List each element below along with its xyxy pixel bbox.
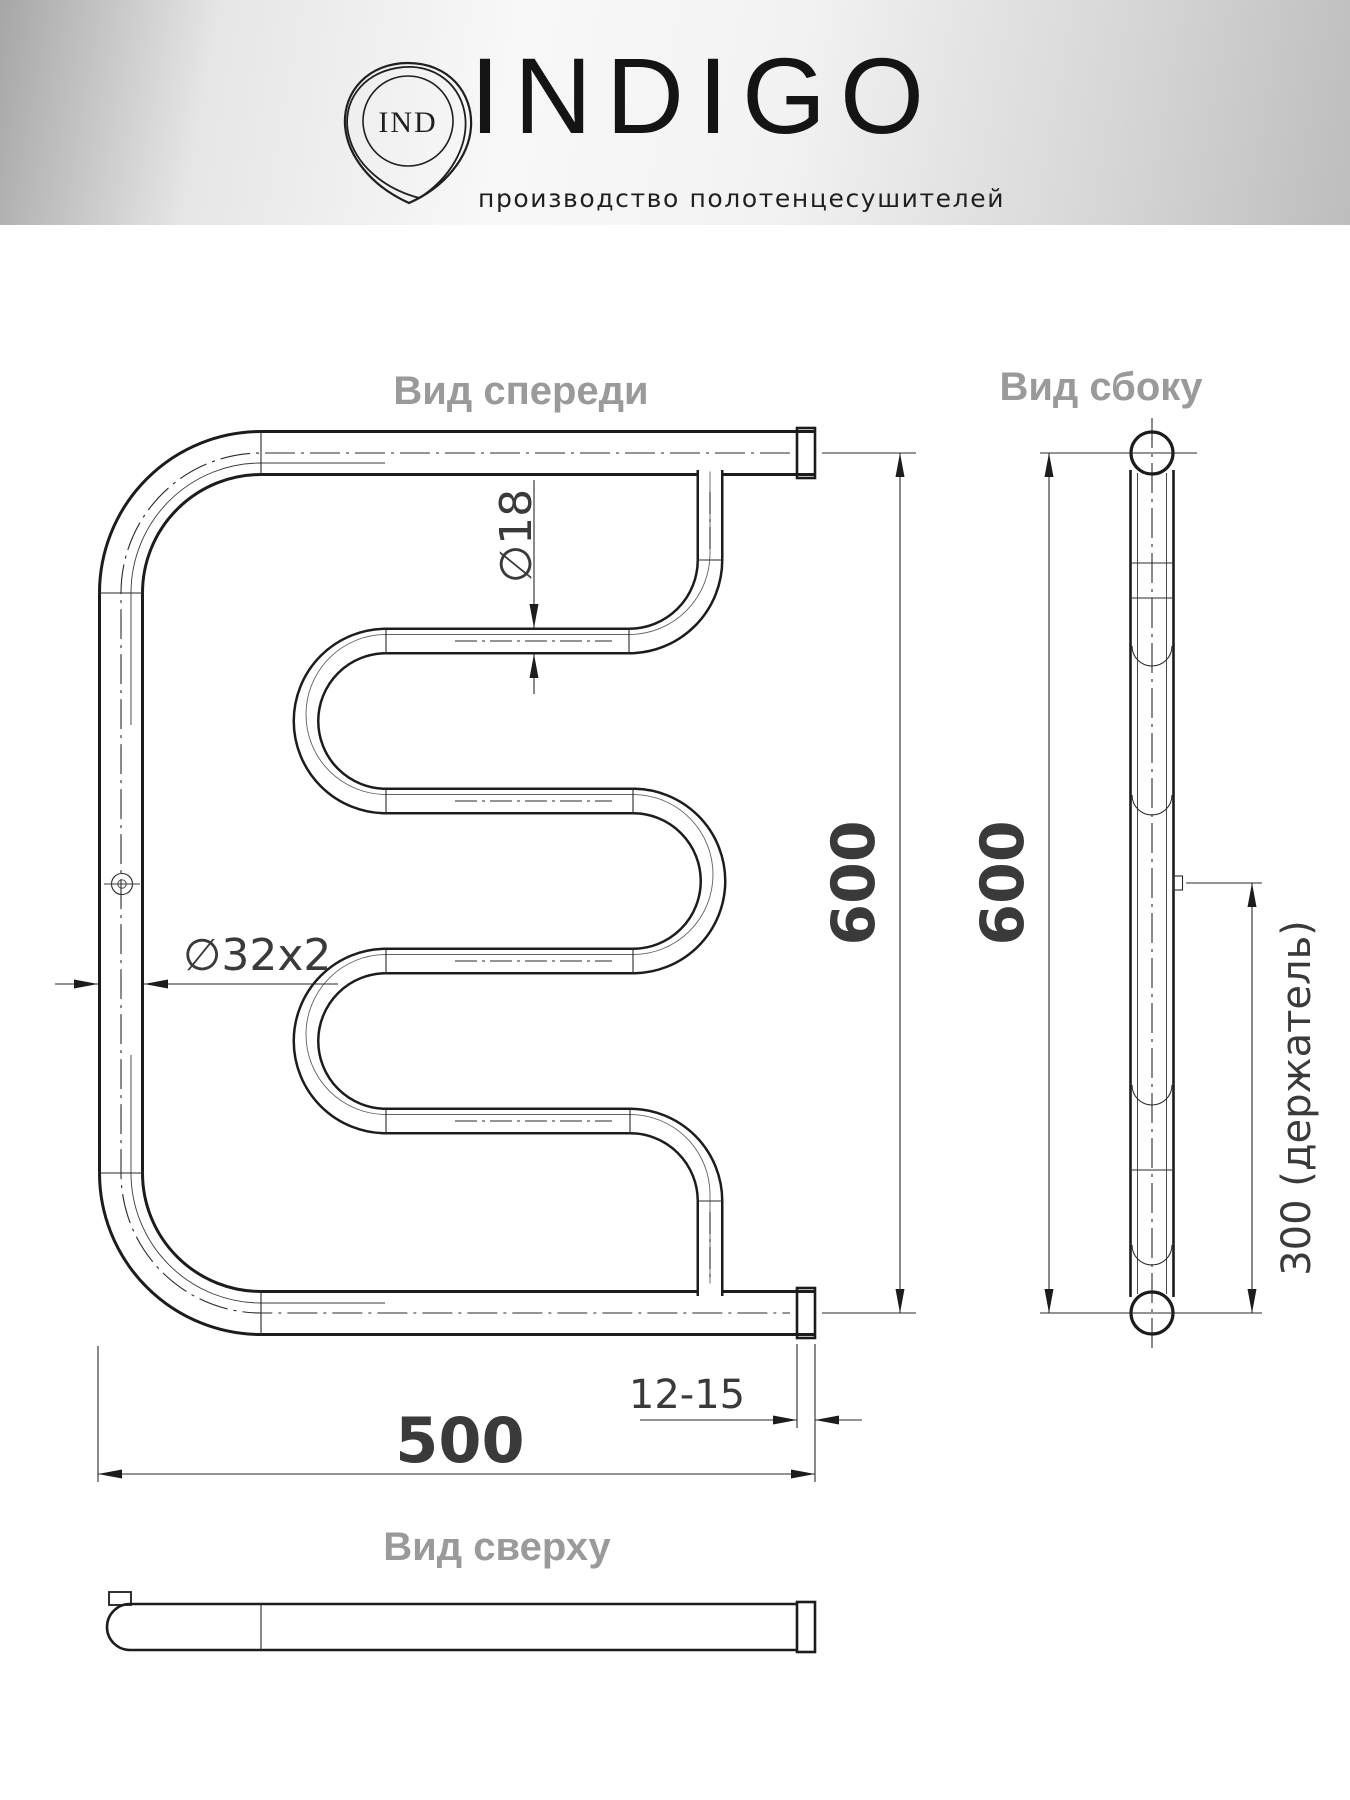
technical-drawing: 600 600 300 (держатель) 500 12-15 ∅18 ∅3… [0,0,1350,1800]
dim-front-height: 600 [819,453,916,1313]
top-view-drawing [107,1592,815,1652]
front-view-drawing [98,428,815,1338]
side-view-label: Вид сбоку [999,365,1203,409]
wall-offset-value: 12-15 [629,1372,745,1418]
dim-wall-offset: 12-15 [629,1344,862,1428]
main-tube-value: ∅32x2 [183,930,331,981]
dim-main-tube: ∅32x2 [55,930,338,989]
front-height-value: 600 [819,820,889,945]
dim-side-height: 600 [968,453,1197,1313]
side-height-value: 600 [968,820,1038,945]
dim-rail-tube: ∅18 [491,480,542,694]
dim-holder-spacing: 300 (держатель) [1186,883,1320,1313]
side-view-drawing [1130,418,1183,1352]
width-value: 500 [395,1404,524,1477]
holder-spacing-value: 300 (держатель) [1274,920,1320,1276]
front-view-label: Вид спереди [393,369,648,413]
holder-bracket [1174,876,1183,890]
top-view-end-fitting [797,1602,815,1652]
top-view-label: Вид сверху [383,1525,611,1569]
rail-tube-value: ∅18 [491,489,542,583]
